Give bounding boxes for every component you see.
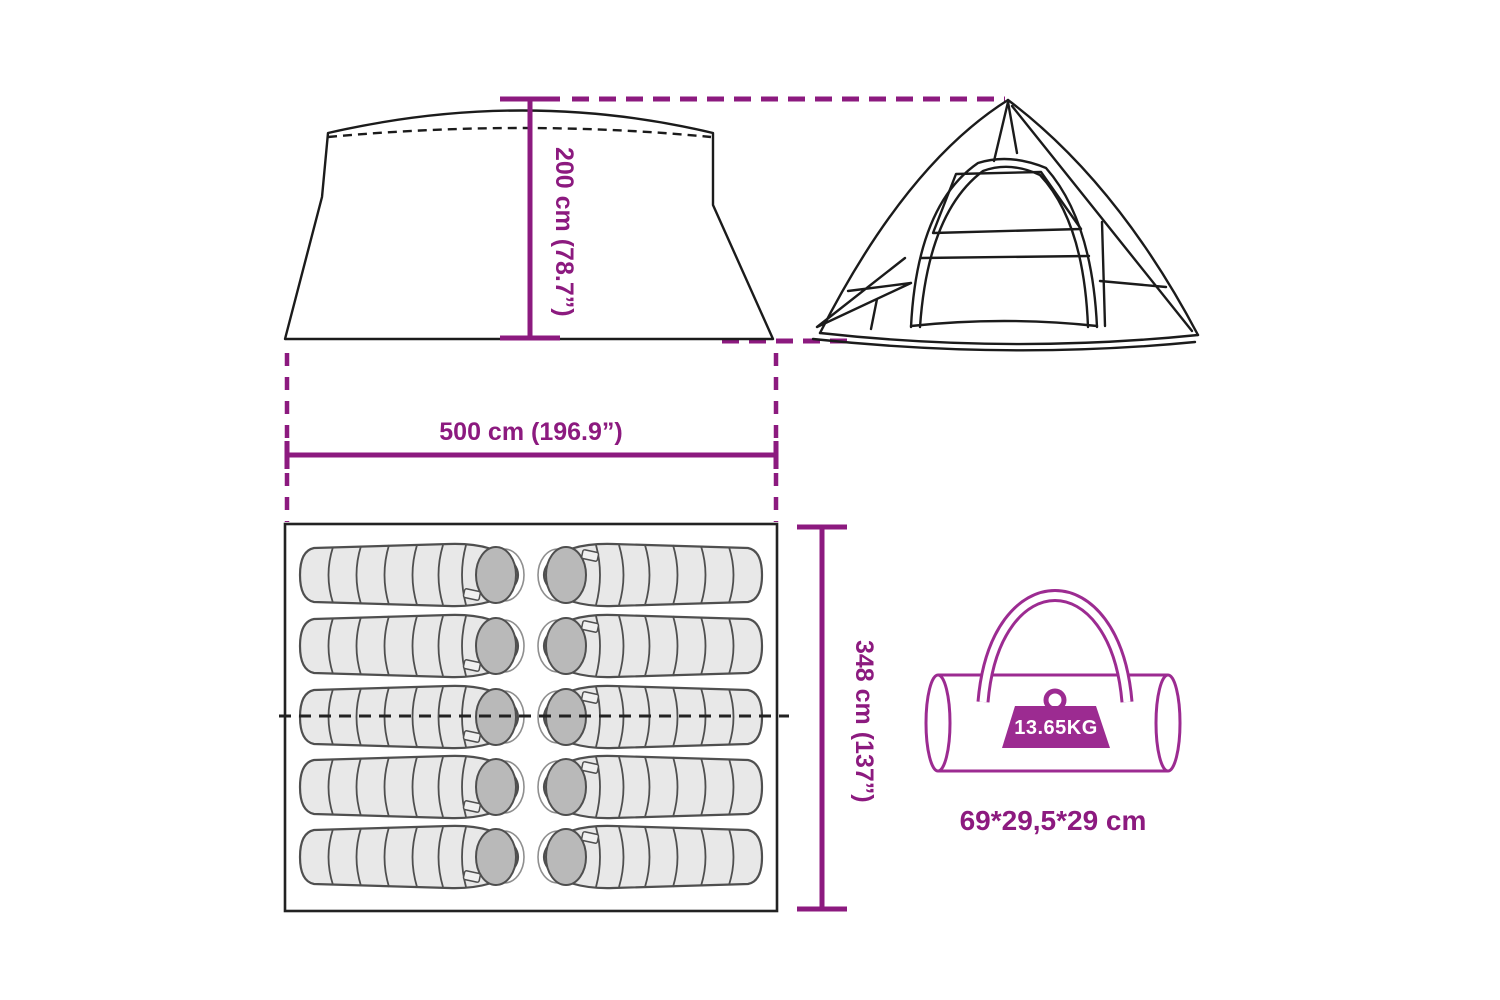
handle-band-inner	[983, 596, 1127, 703]
width-dimension-label: 500 cm (196.9”)	[439, 418, 622, 446]
pack-size-label: 69*29,5*29 cm	[960, 805, 1147, 836]
dome-sill-line	[921, 256, 1089, 258]
depth-dimension-line	[797, 527, 847, 909]
sleeping-bag	[300, 756, 524, 818]
diagram-canvas: 200 cm (78.7”) 500 cm (196.9”) 348 cm (1…	[0, 0, 1500, 1000]
right-panel-seam	[1100, 281, 1166, 287]
right-pole	[1102, 222, 1105, 326]
floor-plan	[279, 524, 789, 911]
projection-guides	[287, 99, 1005, 522]
sleeping-bag	[300, 615, 524, 677]
sleeping-bag	[538, 756, 762, 818]
depth-dimension-label: 348 cm (137”)	[850, 640, 878, 803]
pack-weight-label: 13.65KG	[1014, 717, 1098, 739]
height-dimension-label: 200 cm (78.7”)	[550, 147, 578, 317]
side-peak-fold	[994, 102, 1017, 161]
sleeping-bag	[300, 544, 524, 606]
side-right-seam-diagonal	[1012, 106, 1192, 331]
dome-floor-line	[911, 321, 1097, 326]
depth-dimension: 348 cm (137”)	[797, 527, 878, 909]
sleeping-bag	[538, 826, 762, 888]
height-dimension: 200 cm (78.7”)	[500, 99, 578, 338]
carry-bag-left-cap	[926, 675, 950, 771]
weight-icon: 13.65KG	[1002, 691, 1110, 748]
handle-band-outer	[983, 596, 1127, 703]
carry-bag-handle	[983, 596, 1127, 703]
side-left-seams	[817, 258, 911, 329]
side-base-line	[820, 333, 1198, 344]
inner-dome-outer-arch	[911, 159, 1097, 327]
carry-bag-right-cap	[1156, 675, 1180, 771]
tent-side-view	[813, 100, 1198, 350]
product-dimension-diagram: 200 cm (78.7”) 500 cm (196.9”) 348 cm (1…	[0, 0, 1500, 1000]
sleeping-bag	[300, 826, 524, 888]
width-dimension: 500 cm (196.9”)	[287, 418, 776, 469]
sleeping-bag	[538, 544, 762, 606]
tent-front-inner-dashed-curve	[328, 128, 711, 137]
sleeping-bag	[538, 615, 762, 677]
carry-bag: 13.65KG 69*29,5*29 cm	[926, 596, 1180, 837]
